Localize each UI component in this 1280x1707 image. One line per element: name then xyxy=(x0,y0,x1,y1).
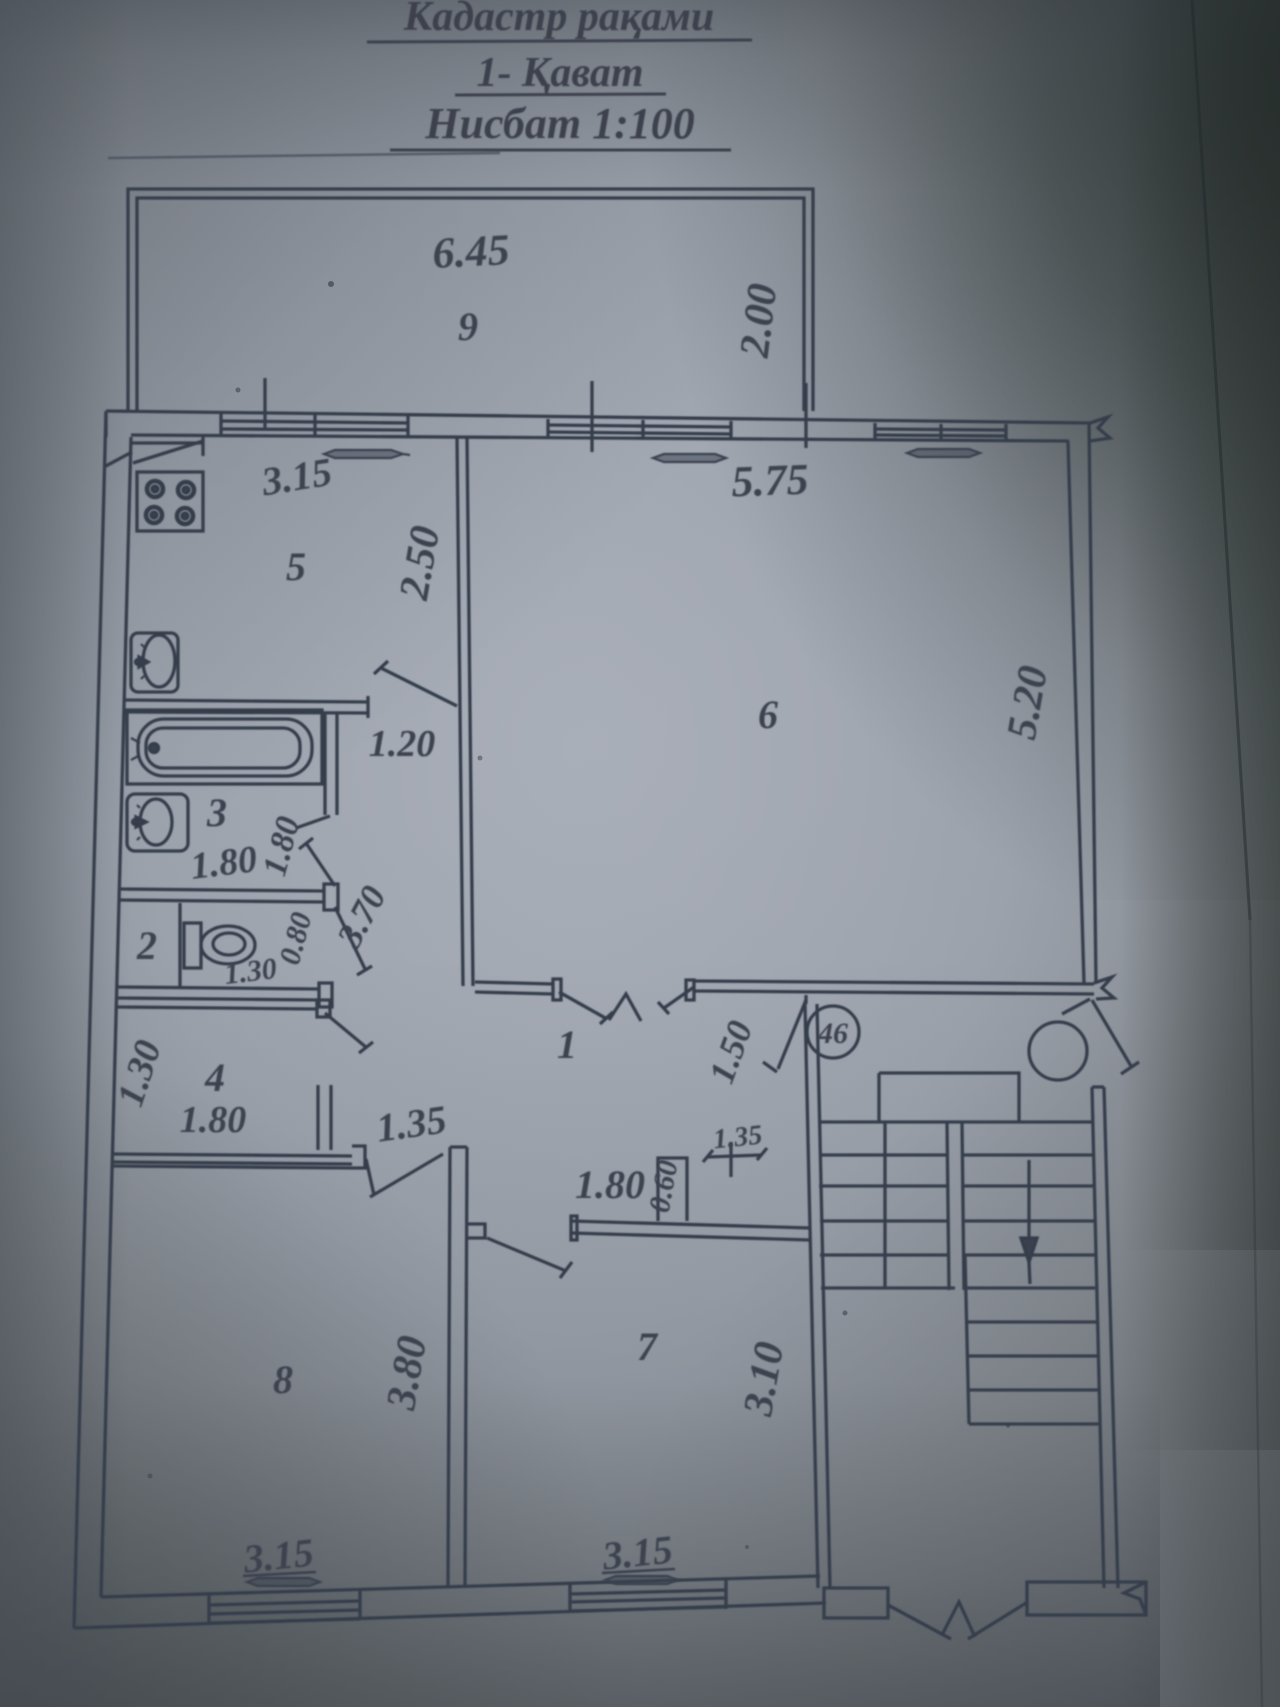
svg-text:9: 9 xyxy=(458,304,478,349)
svg-text:2: 2 xyxy=(136,923,157,968)
svg-text:7: 7 xyxy=(637,1324,659,1369)
svg-text:1: 1 xyxy=(557,1022,577,1067)
svg-text:1.30: 1.30 xyxy=(223,952,279,991)
svg-text:5: 5 xyxy=(286,544,306,589)
svg-text:Кадастр рақами: Кадастр рақами xyxy=(403,0,715,40)
svg-text:1- Қават: 1- Қават xyxy=(476,50,643,96)
svg-text:3: 3 xyxy=(206,790,227,835)
svg-text:6.45: 6.45 xyxy=(431,225,510,278)
svg-text:8: 8 xyxy=(273,1357,293,1402)
svg-text:1.80: 1.80 xyxy=(188,838,259,888)
svg-text:5.75: 5.75 xyxy=(731,455,810,507)
svg-text:4: 4 xyxy=(204,1055,225,1100)
svg-text:1.80: 1.80 xyxy=(575,1162,645,1207)
svg-text:46: 46 xyxy=(817,1017,848,1050)
svg-text:2.00: 2.00 xyxy=(732,281,787,361)
svg-text:1.20: 1.20 xyxy=(369,723,436,765)
svg-text:Нисбат 1:100: Нисбат 1:100 xyxy=(424,99,694,148)
svg-text:1.35: 1.35 xyxy=(712,1120,764,1156)
svg-text:1.80: 1.80 xyxy=(180,1099,247,1141)
svg-text:6: 6 xyxy=(758,692,778,737)
